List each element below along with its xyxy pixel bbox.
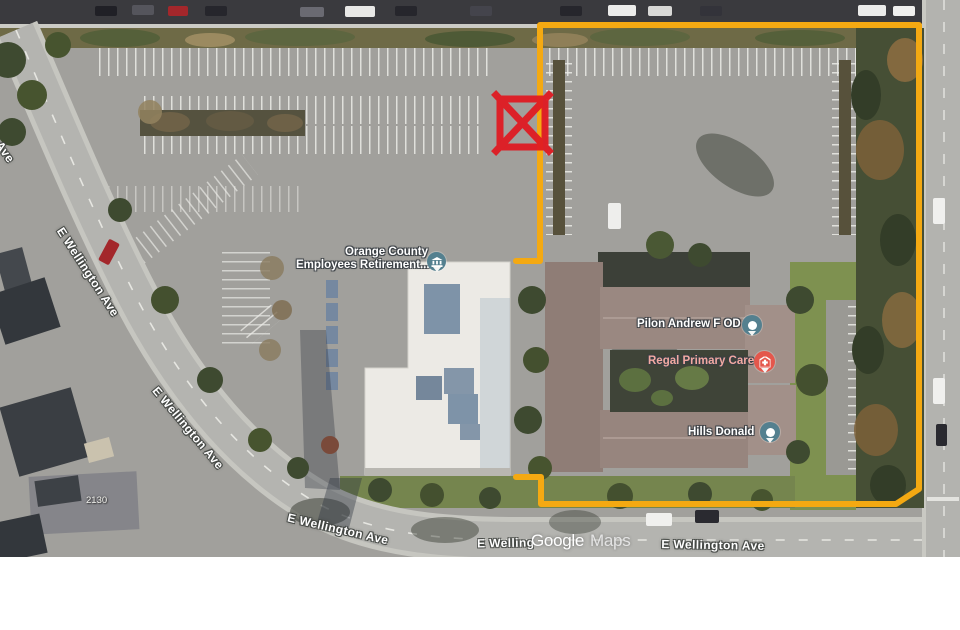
- health-poi-icon[interactable]: [754, 351, 775, 372]
- retirement-poi-icon[interactable]: [427, 252, 446, 271]
- annotated-site-map: E Wellington Ave E Wellington Ave E Well…: [0, 0, 960, 630]
- satellite-map[interactable]: E Wellington Ave E Wellington Ave E Well…: [0, 0, 960, 557]
- street-label-wellington-5: E Wellington Ave: [661, 537, 765, 553]
- poi-label-regal[interactable]: Regal Primary Care: [648, 355, 754, 367]
- pin-dot: [766, 428, 775, 437]
- tree-line: [851, 28, 924, 508]
- pin-dot: [748, 321, 757, 330]
- hedge-strip: [0, 28, 925, 48]
- maps-wordmark: Maps: [590, 531, 630, 551]
- street-label-wellington-4-clipped: E Wellington Ave: [477, 536, 534, 551]
- google-maps-watermark: Google Maps: [531, 531, 630, 551]
- satellite-imagery: [0, 0, 960, 557]
- poi-label-ocers-line1: Orange County: [296, 246, 428, 259]
- poi-label-ocers[interactable]: Orange County Employees Retirement...: [296, 246, 428, 272]
- poi-pin-icon[interactable]: [742, 315, 762, 335]
- poi-label-hills[interactable]: Hills Donald: [688, 426, 754, 438]
- poi-label-pilon[interactable]: Pilon Andrew F OD: [637, 318, 741, 330]
- google-logo: Google: [531, 531, 584, 551]
- poi-label-ocers-line2: Employees Retirement...: [296, 259, 428, 272]
- poi-pin-icon[interactable]: [760, 422, 780, 442]
- house-number-label: 2130: [86, 495, 107, 506]
- bank-building-icon: [431, 257, 442, 267]
- right-street: [922, 0, 960, 557]
- medical-cross-icon: [759, 356, 770, 367]
- legend: Construction Fencing No Parking: [0, 557, 960, 630]
